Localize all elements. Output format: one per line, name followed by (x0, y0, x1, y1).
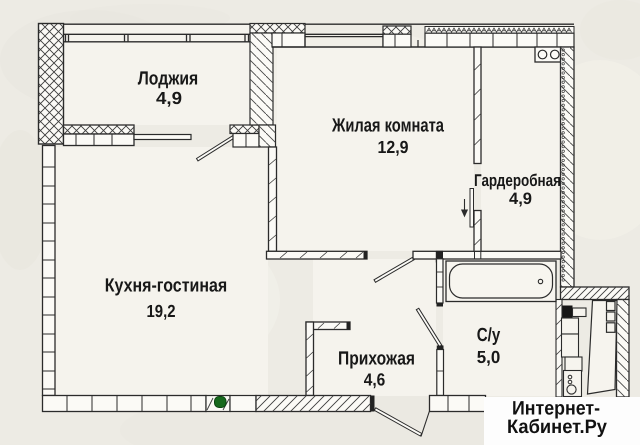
svg-text:Кабинет.Ру: Кабинет.Ру (507, 416, 607, 438)
svg-text:4,9: 4,9 (509, 190, 532, 208)
svg-text:12,9: 12,9 (378, 137, 409, 157)
svg-text:Жилая комната: Жилая комната (331, 116, 444, 137)
svg-text:Гардеробная: Гардеробная (474, 171, 561, 190)
svg-text:4,6: 4,6 (364, 370, 386, 390)
svg-text:5,0: 5,0 (477, 347, 501, 367)
svg-text:Кухня-гостиная: Кухня-гостиная (105, 276, 228, 297)
svg-text:С/у: С/у (477, 325, 501, 346)
svg-text:4,9: 4,9 (156, 88, 182, 108)
svg-text:Лоджия: Лоджия (138, 69, 199, 90)
svg-text:19,2: 19,2 (147, 301, 176, 321)
svg-text:Прихожая: Прихожая (338, 349, 415, 370)
